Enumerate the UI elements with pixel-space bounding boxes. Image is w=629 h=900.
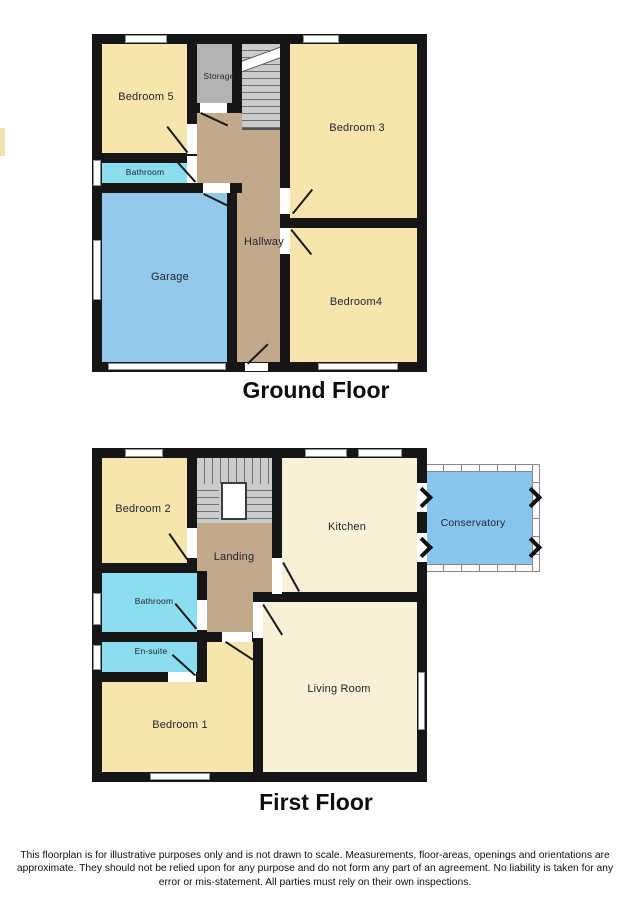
first-floor-title: First Floor	[166, 789, 466, 816]
wall	[92, 772, 427, 782]
wall	[227, 183, 237, 372]
room-label-kitchen: Kitchen	[328, 521, 366, 533]
wall	[92, 34, 102, 372]
room-label-landing: Landing	[214, 551, 255, 563]
room-label-garage: Garage	[151, 271, 189, 283]
window	[305, 449, 347, 457]
room-ensuite	[97, 637, 197, 677]
wall	[92, 153, 197, 163]
room-bedroom-4	[285, 223, 422, 367]
room-label-hallway: Hallway	[244, 236, 284, 248]
door-opening	[253, 602, 263, 638]
door-opening	[272, 558, 282, 594]
room-label-bedroom1: Bedroom 1	[152, 719, 208, 731]
window	[418, 672, 425, 730]
wall	[417, 34, 427, 372]
door-opening	[187, 528, 197, 558]
room-label-ensuite: En-suite	[135, 646, 168, 656]
window	[93, 240, 101, 300]
first-stairs-treads-right	[247, 484, 272, 520]
room-label-bedroom3: Bedroom 3	[329, 122, 385, 134]
window	[93, 160, 101, 186]
window	[358, 449, 402, 457]
conservatory-glazing-bottom	[425, 564, 535, 572]
wall	[280, 218, 427, 228]
first-stairs-treads-left	[197, 484, 219, 520]
window	[150, 773, 210, 780]
window	[303, 35, 339, 43]
conservatory-glazing-top	[425, 464, 535, 472]
room-label-bathroom-ground: Bathroom	[126, 167, 164, 177]
room-label-storage: Storage	[203, 71, 234, 81]
floorplan-page: Bedroom 5 Storage Bedroom 3 Bathroom Gar…	[0, 0, 629, 900]
room-label-living: Living Room	[307, 683, 370, 695]
window	[93, 593, 101, 625]
room-hallway-south	[232, 188, 285, 367]
stairs-edge-line	[242, 128, 280, 130]
room-label-bedroom2: Bedroom 2	[115, 503, 171, 515]
first-stairs-treads-top	[197, 458, 272, 484]
door-opening	[200, 103, 227, 113]
window	[318, 363, 398, 370]
wall	[92, 632, 207, 642]
ground-floor-title: Ground Floor	[166, 377, 466, 404]
wall	[92, 563, 197, 573]
door-opening	[280, 188, 290, 214]
room-label-conservatory: Conservatory	[441, 517, 506, 529]
edge-artifact	[0, 128, 5, 156]
room-label-bathroom-first: Bathroom	[135, 596, 173, 606]
door-opening	[197, 600, 207, 630]
door-opening	[187, 124, 197, 154]
stairwell-void	[221, 482, 247, 520]
door-opening	[203, 183, 230, 193]
window	[93, 645, 101, 670]
room-label-bedroom5: Bedroom 5	[118, 91, 174, 103]
window	[125, 35, 167, 43]
room-label-bedroom4: Bedroom4	[330, 296, 382, 308]
disclaimer-text: This floorplan is for illustrative purpo…	[15, 849, 615, 889]
window	[125, 449, 163, 457]
garage-door	[108, 363, 226, 370]
